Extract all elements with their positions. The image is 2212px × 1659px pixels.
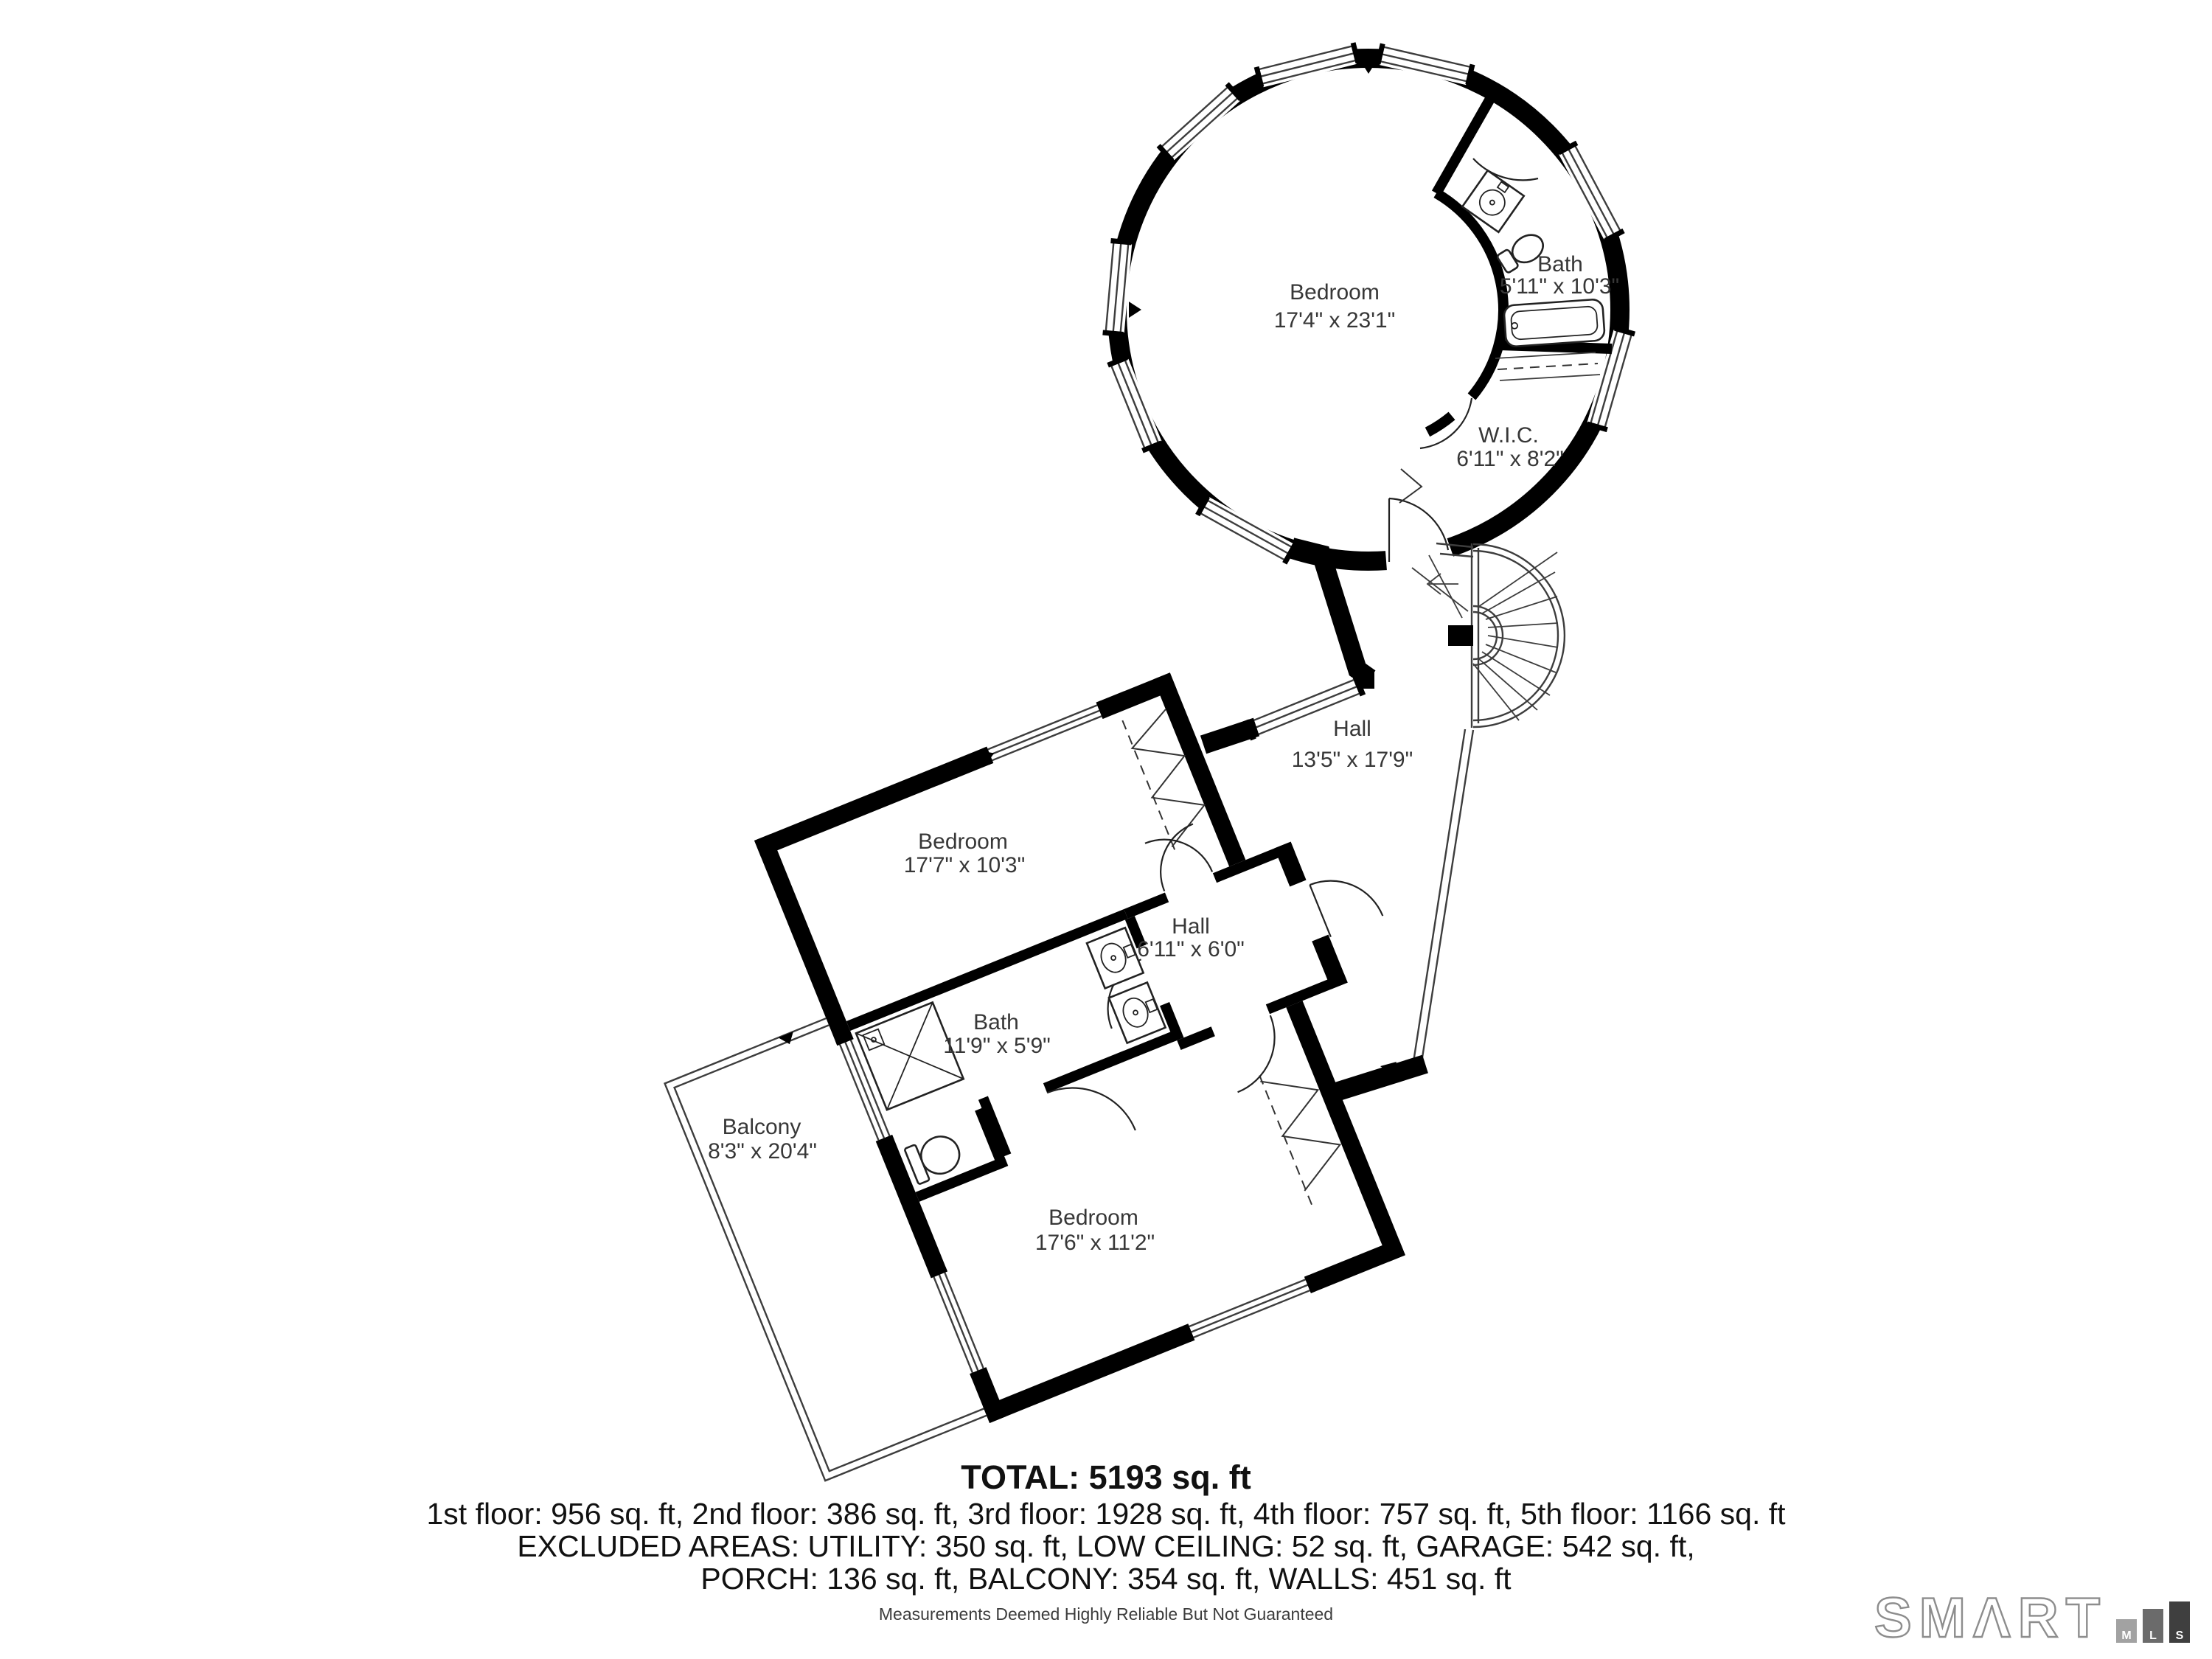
window	[981, 700, 1107, 765]
room-dims: 17'6" x 11'2"	[1035, 1231, 1155, 1255]
room-dims: 17'4" x 23'1"	[1274, 308, 1396, 333]
room-label: Hall	[1333, 717, 1371, 741]
room-dims: 11'9" x 5'9"	[943, 1034, 1051, 1058]
room-label: Bedroom	[1048, 1206, 1138, 1230]
wing-wall-right	[1286, 1001, 1405, 1262]
room-label: Bedroom	[1290, 280, 1380, 305]
room-label: W.I.C.	[1478, 423, 1539, 448]
tower: Bedroom 17'4" x 23'1" Bath 5'11" x 10'3"…	[1102, 41, 1636, 565]
smart-logo-text: SMΛRT	[1874, 1594, 2107, 1643]
mls-bars-icon: M L S	[2116, 1601, 2190, 1643]
hall-bottom-wall	[1336, 1064, 1425, 1092]
room-label: Bath	[973, 1010, 1019, 1034]
room-dims: 8'3" x 20'4"	[708, 1139, 817, 1164]
room-dims: 6'11" x 8'2"	[1456, 447, 1564, 471]
room-dims: 17'7" x 10'3"	[904, 853, 1026, 877]
bathtub-icon	[1503, 299, 1605, 347]
room-label: Balcony	[723, 1115, 801, 1139]
smartmls-logo: SMΛRT M L S	[1874, 1590, 2184, 1643]
room-dims: 5'11" x 10'3"	[1500, 274, 1619, 299]
room-dims: 13'5" x 17'9"	[1292, 748, 1413, 772]
balcony-door	[928, 1267, 989, 1380]
total-area: TOTAL: 5193 sq. ft	[0, 1458, 2212, 1497]
room-dims: 6'11" x 6'0"	[1137, 937, 1245, 961]
mls-bar-s: S	[2169, 1601, 2190, 1643]
floor-plan-drawing: Bedroom 17'4" x 23'1" Bath 5'11" x 10'3"…	[0, 0, 2212, 1659]
hall-wall-stub	[1203, 727, 1256, 745]
excluded-areas-1: EXCLUDED AREAS: UTILITY: 350 sq. ft, LOW…	[0, 1529, 2212, 1564]
mls-bar-m: M	[2116, 1619, 2137, 1643]
floor-areas: 1st floor: 956 sq. ft, 2nd floor: 386 sq…	[0, 1497, 2212, 1531]
room-label: Bedroom	[918, 829, 1008, 854]
stair-newel	[1448, 625, 1473, 646]
room-label: Hall	[1172, 914, 1210, 939]
spiral-staircase	[1412, 543, 1565, 728]
wing-wall-right	[1153, 672, 1245, 866]
wall-bath-bedroom	[1043, 1031, 1177, 1093]
hall-landing: Hall 13'5" x 17'9"	[1203, 543, 1565, 1190]
mls-bar-l: L	[2143, 1609, 2163, 1643]
window	[1183, 1274, 1315, 1343]
room-label: Bath	[1537, 252, 1583, 276]
floor-plan-page: { "rooms": { "tower_bedroom": {"name": "…	[0, 0, 2212, 1659]
